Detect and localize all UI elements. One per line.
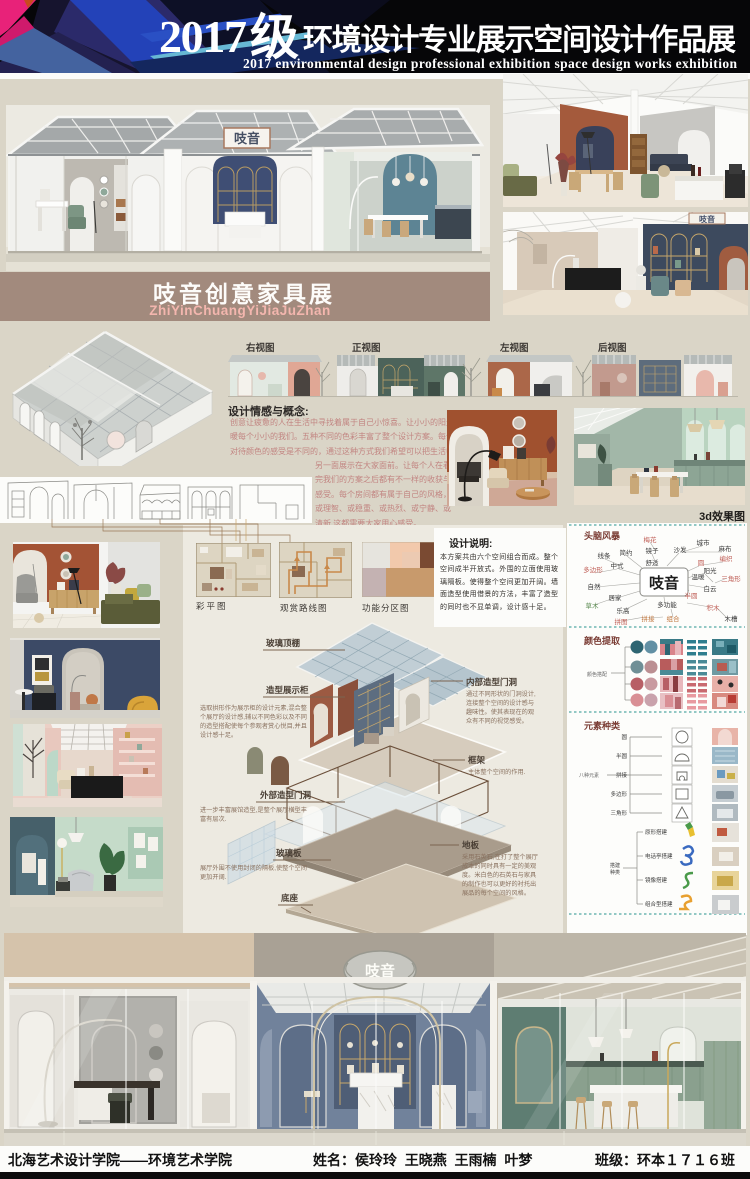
svg-text:原形搭建: 原形搭建	[645, 828, 668, 836]
svg-text:多边形: 多边形	[610, 790, 627, 798]
svg-text:白云: 白云	[704, 584, 718, 593]
svg-text:木槽: 木槽	[725, 614, 739, 623]
svg-text:玻璃顶棚: 玻璃顶棚	[266, 638, 301, 648]
svg-text:富有层次.: 富有层次.	[200, 815, 227, 823]
svg-text:选取拱形作为展示柜的设计元素,混合整: 选取拱形作为展示柜的设计元素,混合整	[200, 704, 307, 712]
svg-text:环境设计专业展示空间设计作品展: 环境设计专业展示空间设计作品展	[303, 23, 736, 57]
svg-text:正视图: 正视图	[352, 342, 381, 354]
svg-text:吱音: 吱音	[234, 131, 260, 146]
svg-text:积木: 积木	[707, 603, 721, 612]
svg-text:展厅外围不使用封闭的隔板,使整个空间: 展厅外围不使用封闭的隔板,使整个空间	[200, 864, 307, 872]
svg-text:多边形: 多边形	[583, 565, 603, 574]
svg-text:颜色搭配: 颜色搭配	[587, 671, 607, 678]
svg-text:地板: 地板	[462, 840, 480, 850]
svg-text:乐高: 乐高	[617, 606, 631, 615]
svg-text:框架: 框架	[468, 755, 486, 765]
svg-text:舒适: 舒适	[646, 558, 660, 567]
svg-text:2017 environmental design prof: 2017 environmental design professional e…	[243, 56, 737, 71]
svg-text:电话亭搭建: 电话亭搭建	[645, 852, 673, 860]
svg-text:多功能: 多功能	[657, 600, 677, 609]
svg-text:展品的每个空间的风格。: 展品的每个空间的风格。	[462, 889, 530, 897]
svg-text:吱音: 吱音	[699, 214, 715, 224]
svg-text:圆: 圆	[698, 559, 705, 567]
svg-text:中式: 中式	[611, 561, 625, 570]
svg-text:内部造型门洞: 内部造型门洞	[466, 677, 518, 687]
svg-text:组合: 组合	[667, 614, 681, 623]
svg-text:草木: 草木	[586, 601, 600, 610]
svg-text:组合型搭建: 组合型搭建	[645, 900, 673, 908]
svg-text:度。米白色的石英石与家具: 度。米白色的石英石与家具	[462, 871, 536, 879]
svg-text:八种元素: 八种元素	[579, 772, 599, 779]
svg-text:元素种类: 元素种类	[584, 720, 621, 731]
svg-text:梅花: 梅花	[644, 535, 658, 544]
svg-text:镜子: 镜子	[646, 546, 660, 555]
svg-text:拼图: 拼图	[615, 617, 628, 626]
svg-text:采用石英石,在打了整个展厅: 采用石英石,在打了整个展厅	[462, 853, 538, 861]
svg-text:连接整个空间的设计感与: 连接整个空间的设计感与	[466, 699, 534, 707]
svg-text:右视图: 右视图	[245, 342, 275, 354]
svg-text:三角形: 三角形	[721, 574, 741, 583]
svg-text:搭建: 搭建	[610, 862, 620, 869]
svg-text:左视图: 左视图	[499, 342, 529, 354]
svg-text:设计感十足。: 设计感十足。	[200, 731, 237, 739]
svg-text:拼接: 拼接	[642, 614, 656, 623]
svg-text:底座: 底座	[281, 893, 299, 903]
svg-text:成本的同时具有一定的美观: 成本的同时具有一定的美观	[462, 862, 536, 870]
svg-text:沙发: 沙发	[674, 545, 688, 554]
svg-text:进一步丰富展馆造型,是整个展厅横型丰: 进一步丰富展馆造型,是整个展厅横型丰	[200, 806, 307, 814]
svg-text:吱音: 吱音	[649, 574, 679, 592]
svg-text:趣味性。使其表现在的观: 趣味性。使其表现在的观	[466, 708, 534, 716]
svg-text:更加开阔.: 更加开阔.	[200, 873, 227, 881]
svg-text:2017: 2017	[159, 11, 247, 62]
svg-text:的造型搭配使每个参观者赏心悦目,并且: 的造型搭配使每个参观者赏心悦目,并且	[200, 722, 307, 730]
svg-text:半圆: 半圆	[616, 752, 628, 760]
svg-text:阳光: 阳光	[704, 566, 718, 575]
svg-text:圆: 圆	[621, 734, 627, 741]
svg-text:众有不同的视觉感受。: 众有不同的视觉感受。	[466, 717, 528, 725]
svg-text:拼接: 拼接	[616, 771, 628, 779]
svg-text:外部造型门洞: 外部造型门洞	[259, 790, 312, 800]
svg-text:头脑风暴: 头脑风暴	[584, 530, 621, 541]
svg-text:玻璃板: 玻璃板	[276, 848, 302, 858]
svg-text:城市: 城市	[697, 538, 711, 547]
svg-text:线条: 线条	[598, 551, 612, 560]
svg-text:主体整个空间的作用.: 主体整个空间的作用.	[468, 768, 526, 776]
svg-text:颜色提取: 颜色提取	[584, 635, 621, 646]
svg-text:编织: 编织	[720, 554, 734, 563]
svg-text:种类: 种类	[610, 869, 620, 876]
svg-text:居家: 居家	[609, 593, 623, 602]
svg-text:麻布: 麻布	[719, 544, 733, 553]
svg-text:半圆: 半圆	[685, 591, 698, 600]
svg-text:个展厅的设计感,辅以不同色彩以及不同: 个展厅的设计感,辅以不同色彩以及不同	[200, 713, 307, 721]
svg-text:自然: 自然	[588, 582, 602, 591]
svg-text:的制作也可以更好的衬托出: 的制作也可以更好的衬托出	[462, 880, 536, 888]
svg-text:造型展示柜: 造型展示柜	[266, 685, 309, 695]
svg-text:通过不同形状的门洞设计,: 通过不同形状的门洞设计,	[466, 690, 536, 698]
svg-text:简约: 简约	[620, 548, 633, 557]
svg-text:三角形: 三角形	[610, 809, 627, 817]
svg-text:镜像搭建: 镜像搭建	[645, 876, 668, 884]
svg-text:后视图: 后视图	[598, 342, 627, 354]
